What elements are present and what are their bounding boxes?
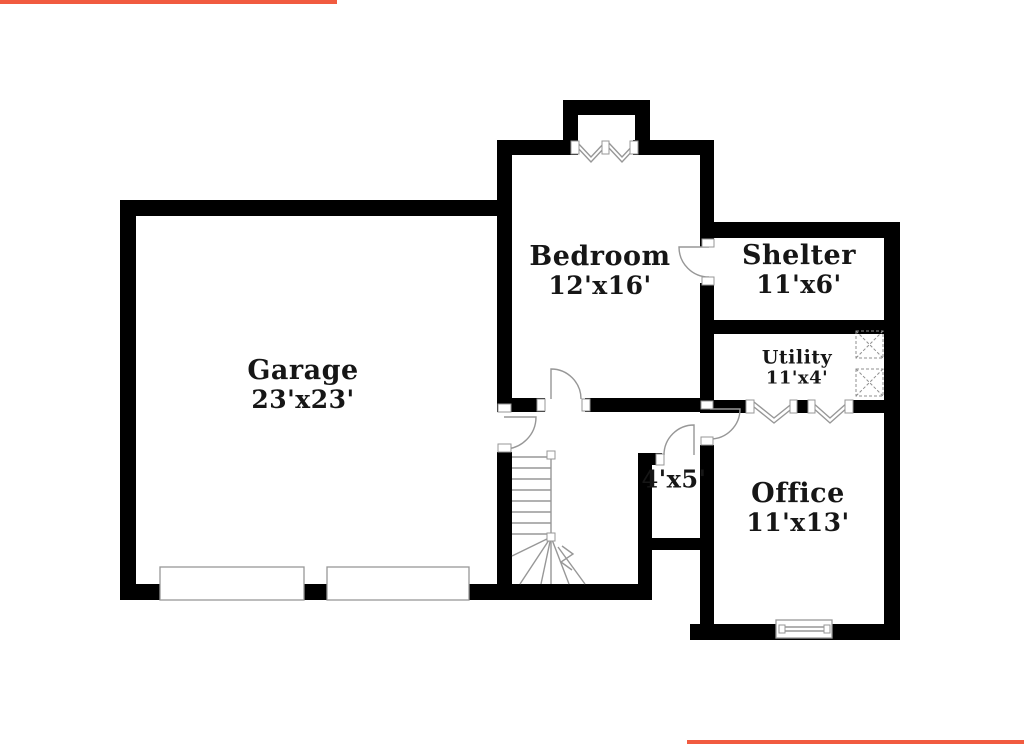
- window-chevron-icon: [746, 400, 853, 423]
- stair-newel: [547, 451, 555, 459]
- window-chevron-icon: [571, 141, 638, 162]
- plan-symbols: [0, 0, 1024, 744]
- appliance-box-icon: [856, 331, 883, 396]
- stair-winders: [512, 537, 585, 584]
- room-label-utility: Utility 11'x4': [762, 347, 832, 388]
- room-label-bedroom: Bedroom 12'x16': [529, 242, 670, 300]
- door-arc: [701, 401, 740, 445]
- room-name: Office: [746, 479, 849, 509]
- garage-door-symbol: [160, 567, 469, 600]
- room-dims: 12'x16': [529, 272, 670, 300]
- room-label-shelter: Shelter 11'x6': [742, 241, 856, 299]
- room-dims: 23'x23': [247, 386, 358, 414]
- room-dims: 11'x4': [762, 369, 832, 389]
- room-dims: 11'x13': [746, 509, 849, 537]
- door-arc: [537, 369, 590, 411]
- door-arc: [498, 404, 536, 452]
- floor-plan: Garage 23'x23' Bedroom 12'x16' Shelter 1…: [0, 0, 1024, 744]
- staircase: [512, 451, 585, 584]
- room-label-closet: 4'x5': [642, 467, 707, 494]
- room-name: Bedroom: [529, 242, 670, 272]
- door-arc: [656, 425, 694, 465]
- room-label-garage: Garage 23'x23': [247, 356, 358, 414]
- stair-newel: [547, 533, 555, 541]
- door-arc: [679, 239, 714, 285]
- room-name: Utility: [762, 347, 832, 368]
- stair-treads: [512, 455, 551, 537]
- room-name: Garage: [247, 356, 358, 386]
- room-name: Shelter: [742, 241, 856, 271]
- room-dims: 11'x6': [742, 271, 856, 299]
- window-symbol: [776, 620, 832, 638]
- room-dims: 4'x5': [642, 467, 707, 494]
- room-label-office: Office 11'x13': [746, 479, 849, 537]
